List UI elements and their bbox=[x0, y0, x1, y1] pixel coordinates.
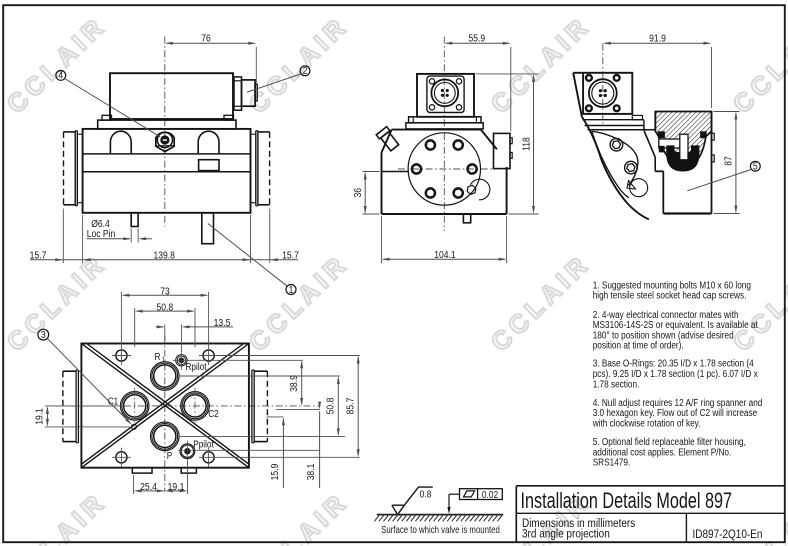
svg-text:5: 5 bbox=[753, 160, 758, 172]
svg-text:0.8: 0.8 bbox=[420, 489, 432, 500]
svg-text:Loc Pin: Loc Pin bbox=[87, 227, 116, 239]
svg-text:38.1: 38.1 bbox=[304, 464, 316, 481]
svg-text:91.9: 91.9 bbox=[649, 32, 666, 44]
svg-text:3: 3 bbox=[41, 328, 46, 340]
svg-text:15.9: 15.9 bbox=[268, 464, 280, 481]
svg-text:50.8: 50.8 bbox=[156, 301, 173, 313]
svg-text:36: 36 bbox=[351, 188, 363, 198]
svg-text:19.1: 19.1 bbox=[168, 480, 185, 492]
svg-text:4: 4 bbox=[58, 69, 63, 81]
svg-text:2: 2 bbox=[303, 64, 308, 76]
svg-text:Surface to which valve is moun: Surface to which valve is mounted bbox=[381, 524, 500, 535]
svg-text:1: 1 bbox=[162, 357, 166, 365]
svg-text:50.8: 50.8 bbox=[324, 398, 336, 415]
svg-text:SRS1479.: SRS1479. bbox=[593, 457, 631, 468]
svg-text:76: 76 bbox=[201, 32, 211, 44]
svg-text:Rpilot: Rpilot bbox=[185, 361, 206, 372]
svg-text:73: 73 bbox=[160, 285, 170, 297]
svg-text:ID897-2Q10-En: ID897-2Q10-En bbox=[693, 528, 763, 541]
svg-text:1.78 section.: 1.78 section. bbox=[593, 378, 640, 389]
svg-text:104.1: 104.1 bbox=[434, 248, 455, 260]
svg-text:55.9: 55.9 bbox=[468, 32, 485, 44]
svg-text:118: 118 bbox=[520, 137, 532, 151]
svg-text:Ppilot: Ppilot bbox=[193, 439, 214, 450]
svg-text:13.5: 13.5 bbox=[214, 316, 231, 328]
svg-text:38.9: 38.9 bbox=[287, 375, 299, 392]
svg-text:19.1: 19.1 bbox=[33, 408, 45, 425]
svg-text:25.4: 25.4 bbox=[140, 480, 157, 492]
svg-text:P: P bbox=[167, 450, 173, 461]
svg-text:position at time of order).: position at time of order). bbox=[593, 340, 684, 351]
svg-text:1: 1 bbox=[289, 283, 294, 295]
svg-text:0.02: 0.02 bbox=[482, 489, 498, 500]
svg-text:high tensile steel socket head: high tensile steel socket head cap screw… bbox=[593, 290, 747, 301]
svg-text:15.7: 15.7 bbox=[282, 249, 299, 261]
svg-text:15.7: 15.7 bbox=[30, 249, 47, 261]
svg-text:85.7: 85.7 bbox=[344, 398, 356, 415]
svg-text:with clockwise rotation of key: with clockwise rotation of key. bbox=[592, 418, 701, 429]
svg-text:R: R bbox=[155, 352, 161, 363]
svg-text:3rd angle projection: 3rd angle projection bbox=[522, 528, 610, 541]
svg-text:C2: C2 bbox=[208, 409, 219, 420]
svg-text:139.8: 139.8 bbox=[153, 249, 174, 261]
svg-text:Installation Details Model 897: Installation Details Model 897 bbox=[521, 488, 733, 513]
svg-text:87: 87 bbox=[722, 156, 734, 166]
